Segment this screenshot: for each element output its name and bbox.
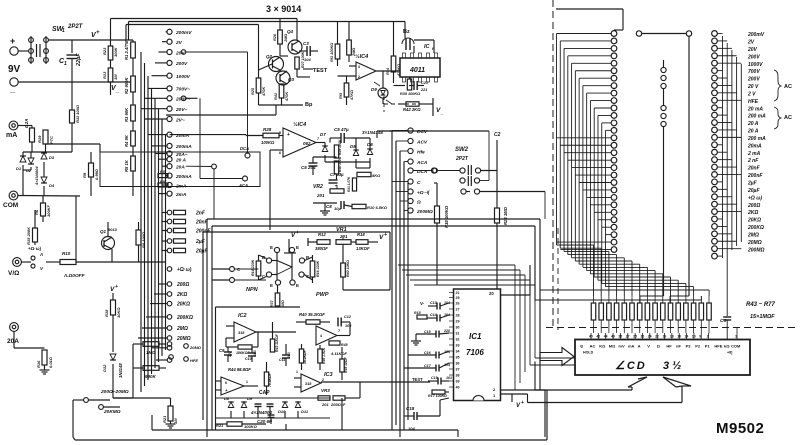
svg-text:20nF: 20nF — [747, 166, 761, 172]
svg-text:4: 4 — [320, 334, 322, 338]
svg-text:+: + — [10, 36, 15, 46]
svg-text:C11: C11 — [279, 358, 285, 362]
svg-text:20 A: 20 A — [747, 121, 759, 127]
svg-text:9013: 9013 — [108, 227, 118, 232]
svg-text:AC: AC — [590, 344, 596, 349]
svg-text:Ω: Ω — [416, 200, 421, 206]
svg-text:Rf1 100KΩ: Rf1 100KΩ — [330, 43, 334, 62]
svg-text:R28: R28 — [263, 127, 272, 132]
svg-text:35: 35 — [618, 335, 622, 339]
svg-text:AC: AC — [784, 84, 792, 90]
svg-text:C5 47µ: C5 47µ — [334, 127, 349, 132]
svg-text:ACA: ACA — [416, 160, 428, 166]
svg-text:R42 2KΩ: R42 2KΩ — [403, 107, 421, 112]
svg-text:44: 44 — [604, 335, 608, 339]
svg-text:R10 6.8KΩ: R10 6.8KΩ — [367, 205, 388, 210]
svg-text:P3: P3 — [686, 344, 692, 349]
svg-text:IC2: IC2 — [238, 313, 247, 319]
svg-text:0.2A: 0.2A — [24, 118, 29, 128]
svg-text:C14: C14 — [430, 313, 437, 317]
svg-text:C2: C2 — [494, 132, 501, 138]
svg-text:P2: P2 — [695, 344, 701, 349]
svg-text:E: E — [270, 283, 273, 288]
svg-text:42: 42 — [596, 335, 600, 339]
svg-text:26: 26 — [456, 302, 460, 306]
svg-text:C8: C8 — [326, 204, 332, 209]
svg-text:Q2: Q2 — [266, 54, 273, 59]
svg-text:20 A: 20 A — [175, 158, 186, 164]
svg-text:10Ω: 10Ω — [281, 300, 285, 307]
svg-text:C21: C21 — [421, 81, 428, 85]
svg-text:C: C — [417, 180, 421, 186]
svg-text:470K: 470K — [285, 92, 289, 102]
svg-text:2µF: 2µF — [195, 239, 206, 245]
svg-text:18: 18 — [670, 335, 674, 339]
svg-text:mA: mA — [628, 344, 635, 349]
svg-text:2V~: 2V~ — [175, 117, 185, 123]
svg-text:221: 221 — [420, 88, 427, 92]
svg-text:D11: D11 — [301, 409, 309, 414]
svg-text:30: 30 — [456, 326, 460, 330]
svg-text:0.01Ω: 0.01Ω — [48, 356, 53, 368]
svg-text:27: 27 — [456, 308, 460, 312]
svg-text:MΩ: MΩ — [609, 344, 616, 349]
svg-text:200Ω~20MΩ: 200Ω~20MΩ — [100, 389, 129, 395]
svg-text:2P2T: 2P2T — [67, 24, 84, 30]
svg-text:100K: 100K — [113, 46, 118, 57]
svg-text:200V: 200V — [747, 77, 760, 83]
svg-text:1MΩ: 1MΩ — [146, 350, 156, 355]
svg-text:+Ω ω): +Ω ω) — [748, 195, 762, 201]
svg-text:20V~: 20V~ — [175, 107, 188, 113]
svg-text:4×1N4004: 4×1N4004 — [34, 166, 39, 186]
svg-text:R5 1K: R5 1K — [124, 159, 129, 172]
svg-text:HFE: HFE — [190, 358, 198, 363]
svg-text:COM: COM — [3, 202, 18, 209]
svg-text:+: + — [96, 30, 100, 36]
svg-text:R13: R13 — [102, 71, 107, 79]
svg-text:20MΩ: 20MΩ — [189, 345, 202, 350]
svg-text:2mA: 2mA — [175, 192, 187, 198]
svg-text:C12: C12 — [344, 315, 352, 319]
svg-text:TEST: TEST — [313, 68, 328, 74]
svg-text:R43 ~ R77: R43 ~ R77 — [746, 302, 776, 308]
svg-text:18.2KΩF: 18.2KΩF — [303, 349, 307, 364]
svg-text:101: 101 — [446, 376, 452, 380]
svg-text:Rf3: Rf3 — [339, 92, 343, 99]
svg-text:A: A — [638, 344, 641, 349]
svg-text:D9: D9 — [247, 396, 253, 401]
svg-text:10KΩ: 10KΩ — [116, 307, 121, 318]
svg-text:DCV: DCV — [417, 129, 428, 135]
svg-text:R43 11KΩF: R43 11KΩF — [275, 333, 279, 352]
svg-text:D1: D1 — [16, 166, 22, 171]
svg-text:+8]: +8] — [727, 351, 732, 355]
svg-text:29: 29 — [456, 320, 460, 324]
svg-text:062: 062 — [303, 141, 311, 146]
svg-text:700V: 700V — [748, 69, 760, 75]
svg-text:½IC4: ½IC4 — [293, 121, 306, 128]
svg-text:R14 220K: R14 220K — [251, 259, 255, 276]
svg-text:318: 318 — [238, 331, 245, 335]
svg-text:4×1N4004: 4×1N4004 — [250, 410, 272, 415]
svg-text:1000V: 1000V — [748, 62, 763, 68]
svg-text:26: 26 — [640, 335, 644, 339]
svg-text:C10: C10 — [245, 357, 252, 361]
svg-text:200 mA: 200 mA — [747, 114, 766, 120]
svg-text:mA: mA — [6, 132, 17, 139]
svg-text:Λ: Λ — [39, 252, 43, 257]
svg-text:HF: HF — [666, 344, 672, 349]
svg-text:200Ω1F: 200Ω1F — [330, 402, 346, 407]
svg-text:20A: 20A — [7, 338, 19, 345]
svg-text:6: 6 — [279, 151, 281, 155]
svg-text:1: 1 — [64, 61, 67, 67]
svg-text:20MΩ: 20MΩ — [176, 336, 191, 342]
svg-text:21: 21 — [456, 291, 460, 295]
svg-text:700V~: 700V~ — [176, 87, 190, 93]
svg-text:C18: C18 — [406, 406, 415, 411]
svg-text:1: 1 — [62, 28, 65, 34]
svg-text:2 nF: 2 nF — [747, 158, 759, 164]
svg-text:19: 19 — [663, 335, 667, 339]
svg-text:25: 25 — [456, 296, 460, 300]
svg-text:200mA: 200mA — [175, 144, 192, 150]
svg-text:200mV: 200mV — [175, 30, 192, 36]
svg-text:200V: 200V — [175, 61, 188, 67]
svg-text:2: 2 — [358, 75, 360, 79]
svg-text:R26: R26 — [273, 33, 277, 41]
svg-text:2MΩ: 2MΩ — [747, 232, 759, 238]
svg-text:R41: R41 — [274, 93, 278, 100]
svg-text:VR1: VR1 — [336, 227, 347, 233]
svg-text:IC1: IC1 — [469, 332, 482, 341]
svg-text:R4 9K: R4 9K — [124, 134, 129, 147]
svg-text:_: _ — [440, 110, 444, 116]
svg-text:ACV: ACV — [416, 140, 428, 146]
svg-text:P1: P1 — [705, 344, 711, 349]
svg-text:TEST: TEST — [412, 377, 423, 382]
svg-text:Q1: Q1 — [100, 229, 107, 234]
svg-text:C7 43µ: C7 43µ — [330, 172, 344, 177]
svg-text:2KΩ: 2KΩ — [747, 210, 758, 216]
svg-text:KΩ: KΩ — [599, 344, 606, 349]
svg-text:C3: C3 — [720, 318, 726, 324]
svg-text:R21: R21 — [162, 415, 167, 423]
svg-text:R37: R37 — [270, 299, 274, 307]
svg-text:20KΩ: 20KΩ — [176, 302, 190, 308]
svg-text:R16 220K: R16 220K — [316, 260, 320, 277]
svg-text:49: 49 — [611, 335, 615, 339]
svg-text:_: _ — [9, 84, 16, 94]
svg-text:103: 103 — [228, 351, 232, 357]
svg-text:kΩ: kΩ — [724, 344, 730, 349]
svg-text:PTC: PTC — [49, 136, 54, 144]
svg-text:100KF: 100KF — [46, 204, 51, 217]
svg-text:COM: COM — [731, 344, 741, 349]
svg-text:7106: 7106 — [466, 348, 484, 357]
svg-text:2: 2 — [707, 335, 709, 339]
svg-text:14: 14 — [685, 335, 689, 339]
svg-text:36: 36 — [456, 362, 460, 366]
svg-text:20A~: 20A~ — [175, 152, 188, 158]
svg-text:2V: 2V — [747, 40, 755, 46]
svg-text:1: 1 — [296, 370, 298, 374]
svg-text:R49 10ΩF: R49 10ΩF — [344, 356, 348, 373]
svg-text:35: 35 — [456, 356, 460, 360]
svg-text:C15: C15 — [424, 330, 432, 334]
svg-text:200Ω: 200Ω — [176, 282, 189, 288]
svg-text:9: 9 — [699, 335, 701, 339]
svg-text:AC: AC — [784, 115, 792, 121]
svg-text:22µF: 22µF — [76, 53, 82, 67]
svg-text:VR3: VR3 — [321, 388, 330, 393]
svg-text:R48: R48 — [341, 343, 348, 347]
svg-text:7: 7 — [317, 137, 319, 141]
svg-text:31: 31 — [456, 332, 460, 336]
svg-text:CAP: CAP — [259, 390, 270, 396]
svg-text:R3 90K: R3 90K — [124, 107, 129, 122]
svg-text:2MΩ: 2MΩ — [176, 326, 188, 332]
svg-text:½IC4: ½IC4 — [355, 53, 368, 60]
svg-text:R27 100K: R27 100K — [301, 51, 305, 68]
svg-text:ACA: ACA — [238, 183, 248, 188]
svg-text:M9502: M9502 — [716, 420, 764, 437]
svg-text:20 V: 20 V — [747, 84, 759, 90]
svg-text:22: 22 — [655, 335, 659, 339]
svg-text:47KΩ: 47KΩ — [350, 90, 354, 101]
svg-text:470K: 470K — [262, 87, 266, 97]
svg-text:R23: R23 — [102, 47, 107, 55]
svg-text:34: 34 — [456, 350, 460, 354]
svg-text:2 mA: 2 mA — [747, 151, 761, 157]
svg-text:R29 100K: R29 100K — [338, 139, 342, 155]
svg-text:40: 40 — [456, 386, 460, 390]
svg-text:_: _ — [115, 88, 120, 94]
svg-text:R40 10KΩ: R40 10KΩ — [346, 260, 350, 277]
svg-text:∠CD: ∠CD — [615, 360, 647, 372]
svg-text:38: 38 — [456, 374, 460, 378]
svg-text:Q4: Q4 — [287, 29, 294, 34]
svg-text:IC3: IC3 — [324, 372, 333, 378]
svg-text:76.8KΩF: 76.8KΩF — [268, 372, 272, 387]
svg-text:20KMΩ: 20KMΩ — [103, 409, 121, 415]
svg-text:7: 7 — [338, 329, 340, 333]
svg-text:PWP: PWP — [316, 292, 329, 298]
svg-text:6: 6 — [225, 381, 227, 385]
svg-text:37: 37 — [456, 368, 460, 372]
svg-text:NPN: NPN — [246, 287, 259, 293]
svg-text:220: 220 — [443, 329, 450, 333]
svg-text:20V: 20V — [747, 47, 758, 53]
svg-text:4011: 4011 — [409, 67, 425, 74]
svg-text:+: + — [521, 400, 524, 406]
svg-text:200mV: 200mV — [747, 32, 765, 38]
svg-text:3: 3 — [358, 65, 360, 69]
svg-text:200KΩ: 200KΩ — [747, 225, 764, 231]
svg-text:201: 201 — [321, 402, 329, 407]
svg-text:E: E — [296, 245, 299, 250]
svg-text:V-: V- — [420, 301, 425, 306]
svg-text:HFE: HFE — [714, 344, 722, 349]
svg-text:R25: R25 — [251, 87, 255, 95]
svg-text:R2 900K: R2 900K — [124, 76, 129, 94]
svg-text:SW2: SW2 — [455, 147, 469, 153]
svg-text:R9: R9 — [82, 172, 87, 178]
svg-text:2P2T: 2P2T — [455, 156, 469, 162]
svg-text:2 V: 2 V — [747, 91, 756, 97]
svg-text:33: 33 — [456, 344, 460, 348]
svg-text:HFE: HFE — [748, 99, 759, 105]
svg-text:D9: D9 — [371, 87, 377, 92]
svg-text:V/Ω: V/Ω — [8, 270, 19, 277]
svg-text:R31 1.07K: R31 1.07K — [347, 176, 351, 192]
svg-text:2V: 2V — [175, 40, 183, 46]
svg-text:200KΩ: 200KΩ — [176, 315, 193, 321]
svg-text:R11 100Ω: R11 100Ω — [75, 104, 80, 123]
svg-text:E: E — [296, 283, 299, 288]
svg-text:nF: nF — [676, 344, 681, 349]
svg-text:R40 39.2KΩF: R40 39.2KΩF — [299, 312, 325, 317]
svg-text:20 A: 20 A — [747, 129, 759, 135]
svg-text:200MΩ: 200MΩ — [416, 209, 433, 215]
svg-text:13KΩF: 13KΩF — [356, 246, 370, 251]
svg-text:1N4148: 1N4148 — [118, 363, 123, 378]
svg-text:+: + — [287, 132, 290, 138]
svg-text:201: 201 — [339, 234, 348, 239]
svg-text:200nF: 200nF — [747, 173, 763, 179]
svg-text:R17 100KΩ: R17 100KΩ — [428, 394, 447, 398]
svg-text:9V: 9V — [8, 64, 21, 75]
svg-text:HOLD: HOLD — [583, 351, 594, 355]
svg-text:R12: R12 — [318, 232, 326, 237]
svg-text:0.99Ω: 0.99Ω — [94, 168, 99, 180]
svg-text:C3: C3 — [303, 41, 309, 46]
svg-text:C16: C16 — [424, 351, 432, 355]
svg-text:103: 103 — [253, 350, 257, 356]
svg-text:E: E — [270, 245, 273, 250]
svg-text:R44 98.8ΩF: R44 98.8ΩF — [228, 367, 251, 372]
svg-text:200 mA: 200 mA — [747, 136, 766, 142]
svg-text:R24 1MΩ: R24 1MΩ — [503, 206, 508, 225]
svg-text:4.11KΩF: 4.11KΩF — [330, 351, 348, 356]
svg-text:R8 100Ω: R8 100Ω — [141, 231, 146, 248]
svg-text:39: 39 — [456, 380, 460, 384]
svg-text:2: 2 — [322, 378, 324, 382]
svg-text:C13: C13 — [430, 301, 437, 305]
svg-text:20MΩ: 20MΩ — [747, 240, 762, 246]
svg-text:R18: R18 — [104, 309, 109, 317]
svg-text:D5: D5 — [350, 144, 356, 149]
svg-text:200Ω: 200Ω — [747, 203, 760, 209]
svg-text:R15 200K: R15 200K — [26, 226, 31, 245]
svg-text:+: + — [296, 230, 299, 236]
svg-text:3 × 9014: 3 × 9014 — [266, 4, 301, 14]
svg-text:104: 104 — [304, 57, 311, 62]
svg-text:2µF: 2µF — [747, 181, 758, 187]
svg-text:V: V — [647, 344, 650, 349]
svg-text:1: 1 — [246, 380, 248, 384]
svg-text:28: 28 — [456, 314, 460, 318]
svg-text:200V~: 200V~ — [175, 97, 190, 103]
svg-text:20mA: 20mA — [175, 133, 190, 139]
svg-text:2KΩ: 2KΩ — [176, 292, 187, 298]
svg-text:20KΩ: 20KΩ — [747, 218, 761, 224]
svg-text:5KΩ: 5KΩ — [372, 173, 381, 178]
svg-text:R1 2.4/7M: R1 2.4/7M — [124, 40, 129, 60]
svg-text:105: 105 — [345, 324, 352, 328]
svg-text:+: + — [115, 284, 118, 290]
svg-text:C19: C19 — [431, 376, 438, 380]
svg-text:DCA: DCA — [417, 169, 428, 175]
svg-text:15×1MΩF: 15×1MΩF — [750, 314, 775, 320]
svg-text:R10: R10 — [62, 251, 71, 256]
svg-text:D12: D12 — [102, 364, 107, 372]
svg-text:R35 100KΩ: R35 100KΩ — [400, 92, 420, 96]
svg-text:5: 5 — [279, 131, 281, 135]
svg-text:32: 32 — [456, 338, 460, 342]
svg-text:318: 318 — [305, 382, 312, 386]
svg-text:200V: 200V — [747, 54, 760, 60]
svg-text:25: 25 — [633, 335, 637, 339]
svg-text:100KΩ: 100KΩ — [261, 140, 275, 145]
svg-text:20: 20 — [489, 291, 494, 296]
svg-text:Hfe: Hfe — [417, 150, 425, 156]
svg-text:16: 16 — [677, 335, 681, 339]
svg-text:20V: 20V — [175, 50, 185, 56]
svg-text:R15: R15 — [414, 311, 422, 315]
svg-text:Λ.Ω0OFF: Λ.Ω0OFF — [63, 273, 86, 279]
svg-text:+Ω⊣(: +Ω⊣( — [417, 190, 431, 196]
svg-text:990K: 990K — [145, 374, 157, 379]
svg-text:104: 104 — [408, 426, 415, 431]
svg-text:R18: R18 — [357, 232, 365, 237]
svg-text:2nF: 2nF — [195, 211, 206, 217]
svg-text:VR2: VR2 — [313, 184, 323, 190]
svg-text:D8: D8 — [224, 396, 230, 401]
svg-text:100KΩ: 100KΩ — [244, 424, 258, 429]
svg-text:R34: R34 — [386, 67, 390, 75]
svg-text:R30 100K: R30 100K — [338, 156, 342, 172]
svg-text:27: 27 — [626, 335, 630, 339]
svg-text:R19: R19 — [37, 135, 42, 143]
svg-text:D4: D4 — [49, 183, 55, 188]
svg-text:200MΩ: 200MΩ — [747, 247, 765, 253]
svg-text:R46 1.91K: R46 1.91K — [322, 347, 326, 364]
svg-text:+: + — [225, 388, 228, 393]
svg-text:24: 24 — [648, 335, 652, 339]
svg-text:R38 100KΩ: R38 100KΩ — [444, 205, 449, 228]
svg-text:C17: C17 — [424, 364, 432, 368]
svg-text:10: 10 — [692, 335, 696, 339]
svg-text:20 mA: 20 mA — [747, 106, 763, 112]
svg-text:1000V: 1000V — [176, 74, 191, 80]
svg-text:201: 201 — [316, 193, 325, 198]
svg-text:+Ω·ω): +Ω·ω) — [177, 267, 192, 273]
svg-text:Q3: Q3 — [288, 77, 295, 82]
svg-text:103: 103 — [287, 352, 291, 358]
svg-text:200mA: 200mA — [175, 174, 192, 180]
svg-text:1MΩ: 1MΩ — [284, 34, 288, 42]
svg-text:mV: mV — [618, 344, 625, 349]
svg-text:1M: 1M — [113, 74, 118, 80]
svg-text:R16: R16 — [36, 360, 41, 368]
svg-text:D7: D7 — [320, 132, 326, 137]
svg-text:Bp: Bp — [305, 102, 313, 108]
svg-text:20mA: 20mA — [747, 143, 762, 149]
svg-text:+Ω·ω): +Ω·ω) — [28, 246, 42, 251]
svg-text:1M: 1M — [173, 418, 178, 424]
